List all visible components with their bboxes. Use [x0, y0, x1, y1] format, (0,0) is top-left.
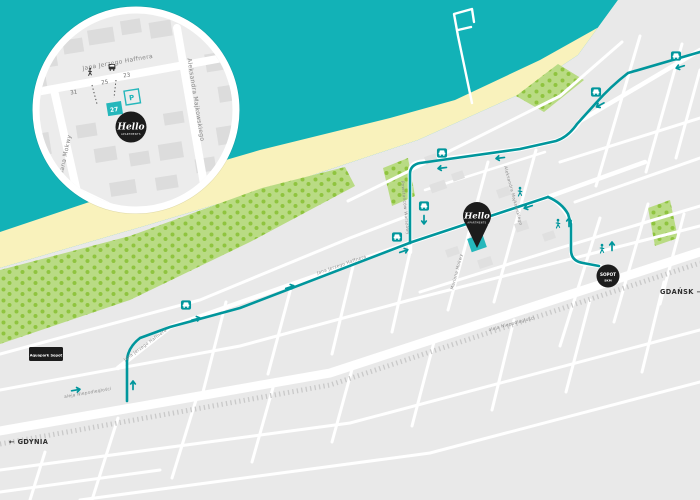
station-sub: SKM	[604, 279, 611, 283]
sopot-map: Jana Jerzego Haffnera Jana Jerzego Haffn…	[0, 0, 700, 500]
car-icon	[419, 201, 429, 210]
hello-pin-sub: APARTMENTS	[468, 222, 487, 225]
hello-inset-sub: APARTMENTS	[121, 133, 141, 136]
station-badge-sopot: SOPOT SKM	[597, 265, 620, 288]
map-canvas: Jana Jerzego Haffnera Jana Jerzego Haffn…	[0, 0, 700, 500]
car-icon	[392, 232, 402, 241]
building-number-31: 31	[70, 89, 78, 96]
hello-inset-name: Hello	[116, 123, 144, 133]
car-icon	[437, 148, 447, 157]
unit-number: 27	[110, 106, 119, 114]
label-gdynia: ← GDYNIA	[9, 438, 49, 446]
car-icon	[181, 300, 191, 309]
label-gdansk: GDAŃSK →	[660, 287, 700, 296]
aquapark-badge: Aquapark Sopot	[29, 347, 63, 361]
building-number-25: 25	[101, 79, 109, 86]
building-number-23: 23	[123, 72, 131, 79]
inset-hello-logo: Hello APARTMENTS	[116, 112, 147, 143]
car-icon	[591, 87, 601, 96]
hello-pin-name: Hello	[463, 212, 490, 222]
station-name: SOPOT	[600, 272, 616, 277]
aquapark-label: Aquapark Sopot	[30, 354, 63, 358]
car-icon	[671, 51, 681, 60]
